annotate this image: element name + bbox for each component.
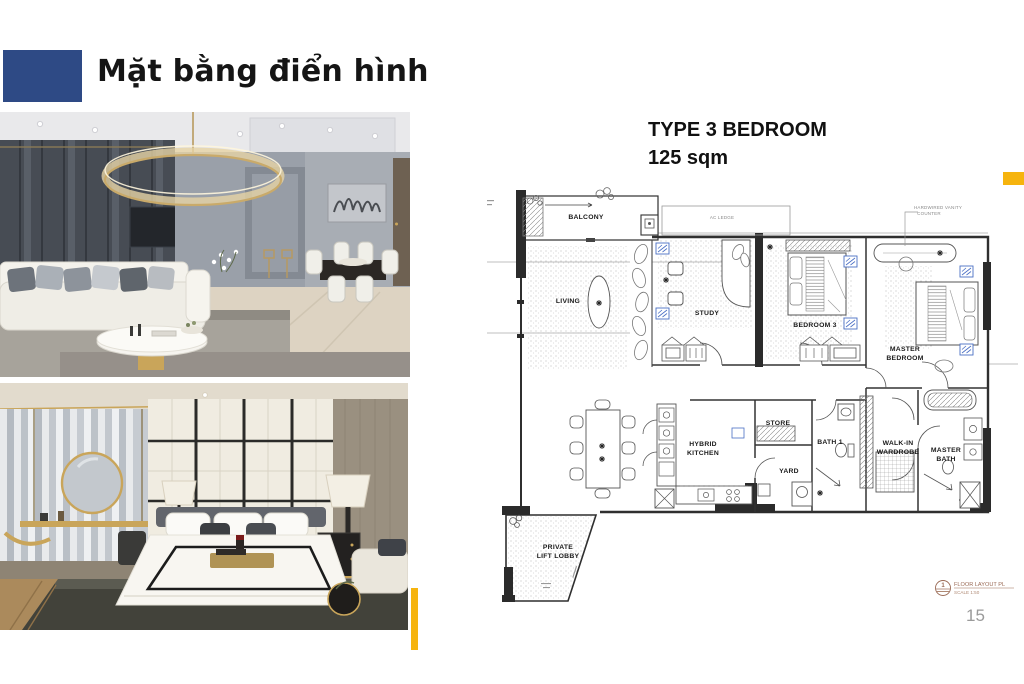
bath1-zone [816, 404, 854, 496]
floor-plan-heading: TYPE 3 BEDROOM 125 sqm [648, 116, 827, 172]
living-room-illustration [0, 112, 410, 377]
bedroom-illustration [0, 383, 408, 630]
room-label-walkin-1: WALK-IN [883, 440, 914, 447]
page-number: 15 [966, 606, 985, 626]
store-zone [757, 426, 795, 441]
room-label-master-bath-2: BATH [936, 456, 955, 463]
ac-ledge: AC LEDGE [662, 206, 790, 235]
floor-plan-drawing: AC LEDGE [484, 182, 1020, 610]
room-label-kitchen-1: HYBRID [689, 441, 717, 448]
living-room-photo [0, 112, 410, 377]
yard-zone [758, 482, 812, 506]
room-label-kitchen-2: KITCHEN [687, 450, 719, 457]
room-label-master-bedroom-2: BEDROOM [886, 355, 923, 362]
room-label-bedroom3: BEDROOM 3 [793, 322, 836, 329]
room-label-living: LIVING [556, 298, 580, 305]
room-label-master-bath-1: MASTER [931, 447, 961, 454]
page-title: Mặt bằng điển hình [97, 54, 429, 89]
room-label-lobby-1: PRIVATE [543, 544, 573, 551]
plan-type-label: TYPE 3 BEDROOM [648, 116, 827, 144]
vanity-callout: HARDWIRED VANITY COUNTER [914, 205, 962, 216]
bedroom-photo [0, 383, 408, 630]
plan-area-label: 125 sqm [648, 144, 827, 172]
presentation-slide: Mặt bằng điển hình [0, 0, 1024, 684]
title-block-scale: SCALE 1:50 [954, 590, 980, 595]
room-label-lobby-2: LIFT LOBBY [537, 553, 580, 560]
room-label-balcony: BALCONY [568, 214, 604, 221]
callout-line1: HARDWIRED VANITY [914, 205, 962, 210]
title-block-number: 1 [941, 583, 945, 589]
room-label-walkin-2: WARDROBE [877, 449, 920, 456]
room-label-bath1: BATH 1 [817, 439, 843, 446]
plan-title-block: 1 FLOOR LAYOUT PL SCALE 1:50 [936, 581, 1015, 596]
ac-ledge-label: AC LEDGE [710, 215, 734, 220]
room-label-study: STUDY [695, 310, 720, 317]
title-block-name: FLOOR LAYOUT PL [954, 582, 1005, 588]
room-label-yard: YARD [779, 468, 799, 475]
sofa [0, 262, 210, 330]
title-accent-block [3, 50, 82, 102]
room-label-master-bedroom-1: MASTER [890, 346, 920, 353]
dining-set-plan [570, 400, 635, 498]
callout-line2: COUNTER [917, 211, 941, 216]
yellow-accent-bar-vertical [411, 588, 418, 650]
room-label-store: STORE [766, 420, 791, 427]
